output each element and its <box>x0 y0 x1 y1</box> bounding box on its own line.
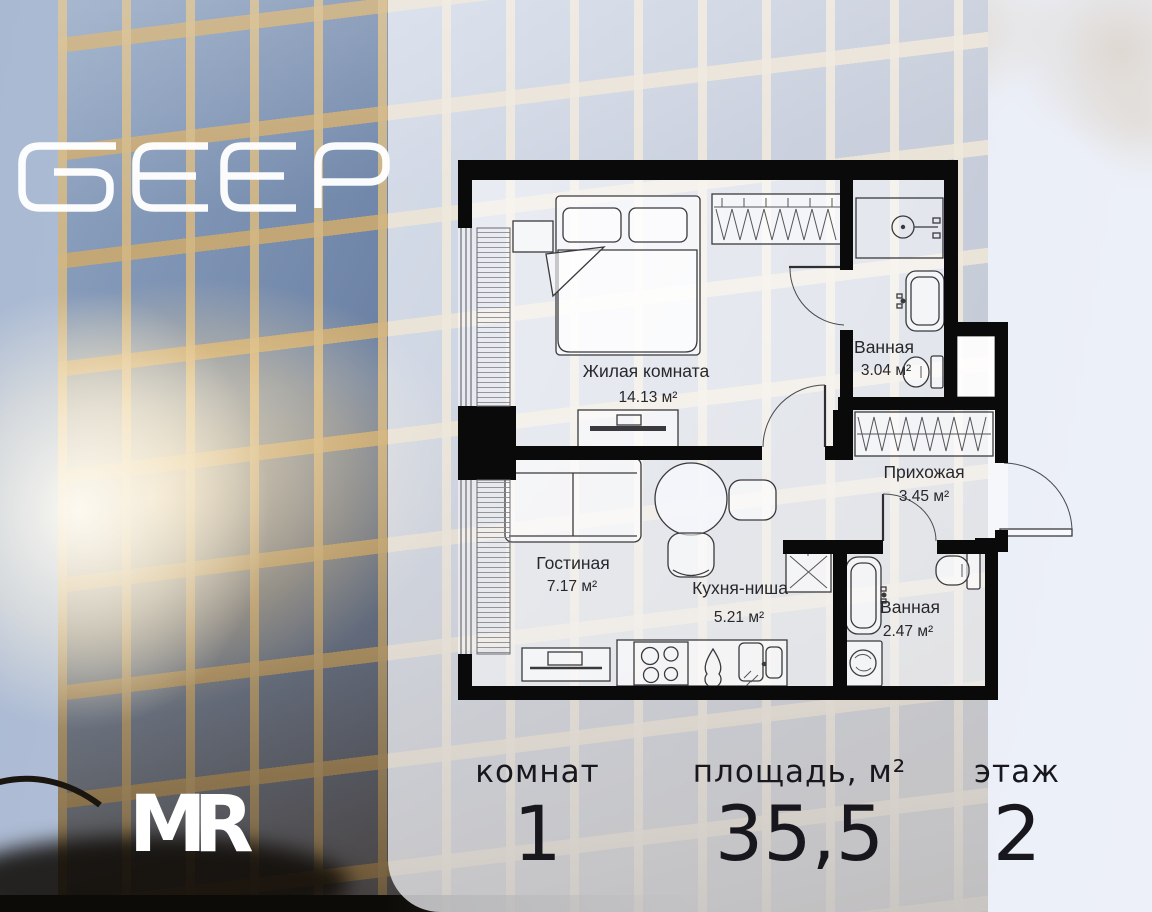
tv-stand <box>522 648 610 681</box>
pillow <box>629 208 687 242</box>
summary-floor: этаж 2 <box>942 757 1092 872</box>
rooms-label: комнат <box>420 757 655 788</box>
rooms-value: 1 <box>420 796 655 872</box>
room-name: Ванная <box>854 337 914 357</box>
chair <box>668 533 714 577</box>
developer-logo: MR <box>129 786 241 864</box>
sun-flare <box>0 290 270 730</box>
dining-table <box>655 463 727 535</box>
floor-label: этаж <box>942 757 1092 788</box>
entrance-door <box>1000 463 1072 536</box>
area-value: 35,5 <box>652 796 947 872</box>
room-name: Кухня-ниша <box>692 578 788 598</box>
room-name: Гостиная <box>536 553 609 573</box>
sofa <box>505 458 641 542</box>
hallway-wardrobe <box>855 412 993 456</box>
room-area: 7.17 м² <box>547 578 597 595</box>
floor-plan: Жилая комната 14.13 м² Ванная 3.04 м² Пр… <box>438 146 1090 712</box>
room-area: 3.04 м² <box>861 362 911 379</box>
room-area: 3.45 м² <box>899 488 949 505</box>
dining-chair <box>729 480 776 520</box>
bed <box>546 196 700 355</box>
listing-card: ВЕЕР MR <box>0 0 1152 912</box>
area-label: площадь, м² <box>652 757 947 788</box>
room-area: 14.13 м² <box>619 389 678 406</box>
room-area: 2.47 м² <box>883 623 933 640</box>
summary-rooms: комнат 1 <box>420 757 655 872</box>
room-area: 5.21 м² <box>714 609 764 626</box>
pillow <box>563 208 621 242</box>
summary-area: площадь, м² 35,5 <box>652 757 947 872</box>
nightstand <box>513 221 553 252</box>
desk-tv <box>578 410 678 447</box>
room-name: Ванная <box>880 597 940 617</box>
room-name: Жилая комната <box>583 361 710 381</box>
room-name: Прихожая <box>883 462 964 482</box>
floor-value: 2 <box>942 796 1092 872</box>
bedroom-wardrobe <box>712 194 842 244</box>
lamp-curve <box>0 765 110 825</box>
veer-logo-icon <box>8 134 390 218</box>
washing-machine-icon <box>845 641 882 686</box>
bathroom2-sink <box>846 557 887 634</box>
utility-shaft <box>957 336 995 397</box>
project-logo: ВЕЕР <box>8 134 390 218</box>
